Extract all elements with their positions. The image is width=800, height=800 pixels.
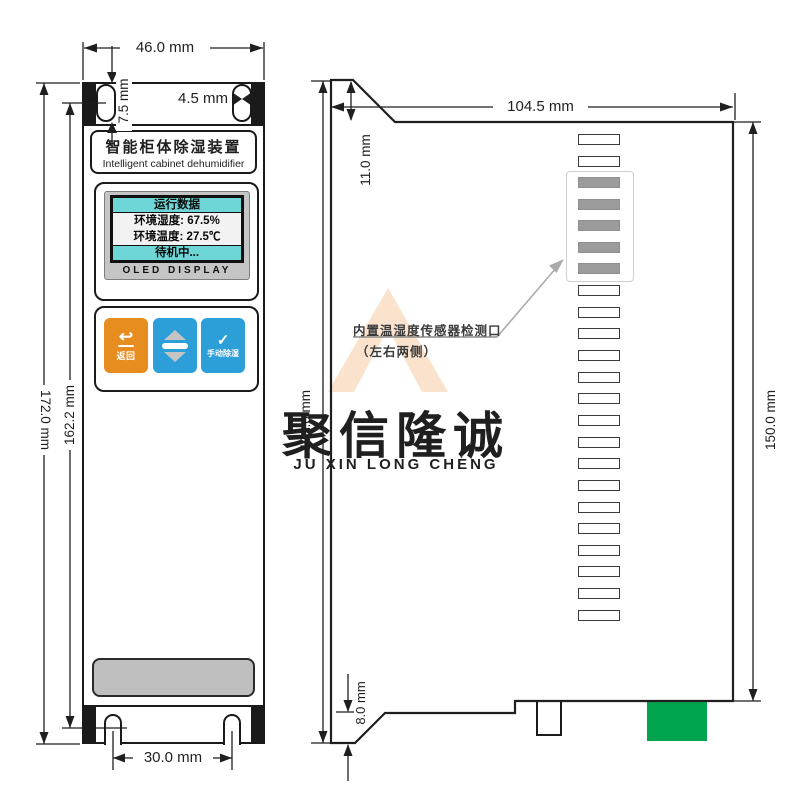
dim-front-width: 46.0 mm bbox=[120, 38, 210, 58]
technical-drawing: 聚信隆诚 JU XIN LONG CHENG 智能柜体除湿装置 Intellig… bbox=[0, 0, 800, 800]
dim-front-height: 172.0 mm bbox=[37, 385, 53, 455]
dim-slot-width: 4.5 mm bbox=[150, 89, 228, 109]
dim-bottom-chamfer: 8.0 mm bbox=[353, 675, 369, 731]
dim-slot-height: 7.5 mm bbox=[116, 71, 132, 131]
watermark-english: JU XIN LONG CHENG bbox=[268, 456, 524, 473]
leader-arrowhead-icon bbox=[549, 259, 564, 273]
dim-hole-span: 162.2 mm bbox=[62, 380, 78, 450]
dim-notch-span: 30.0 mm bbox=[133, 748, 213, 768]
dim-body-height: 150.0 mm bbox=[763, 385, 779, 455]
dim-side-height: 172.0 mm bbox=[298, 385, 314, 455]
sensor-callout-line2: （左右两侧） bbox=[356, 341, 437, 360]
dim-side-depth: 104.5 mm bbox=[493, 97, 588, 117]
dim-top-chamfer: 11.0 mm bbox=[358, 129, 374, 191]
sensor-callout-line1: 内置温湿度传感器检测口 bbox=[353, 320, 502, 339]
